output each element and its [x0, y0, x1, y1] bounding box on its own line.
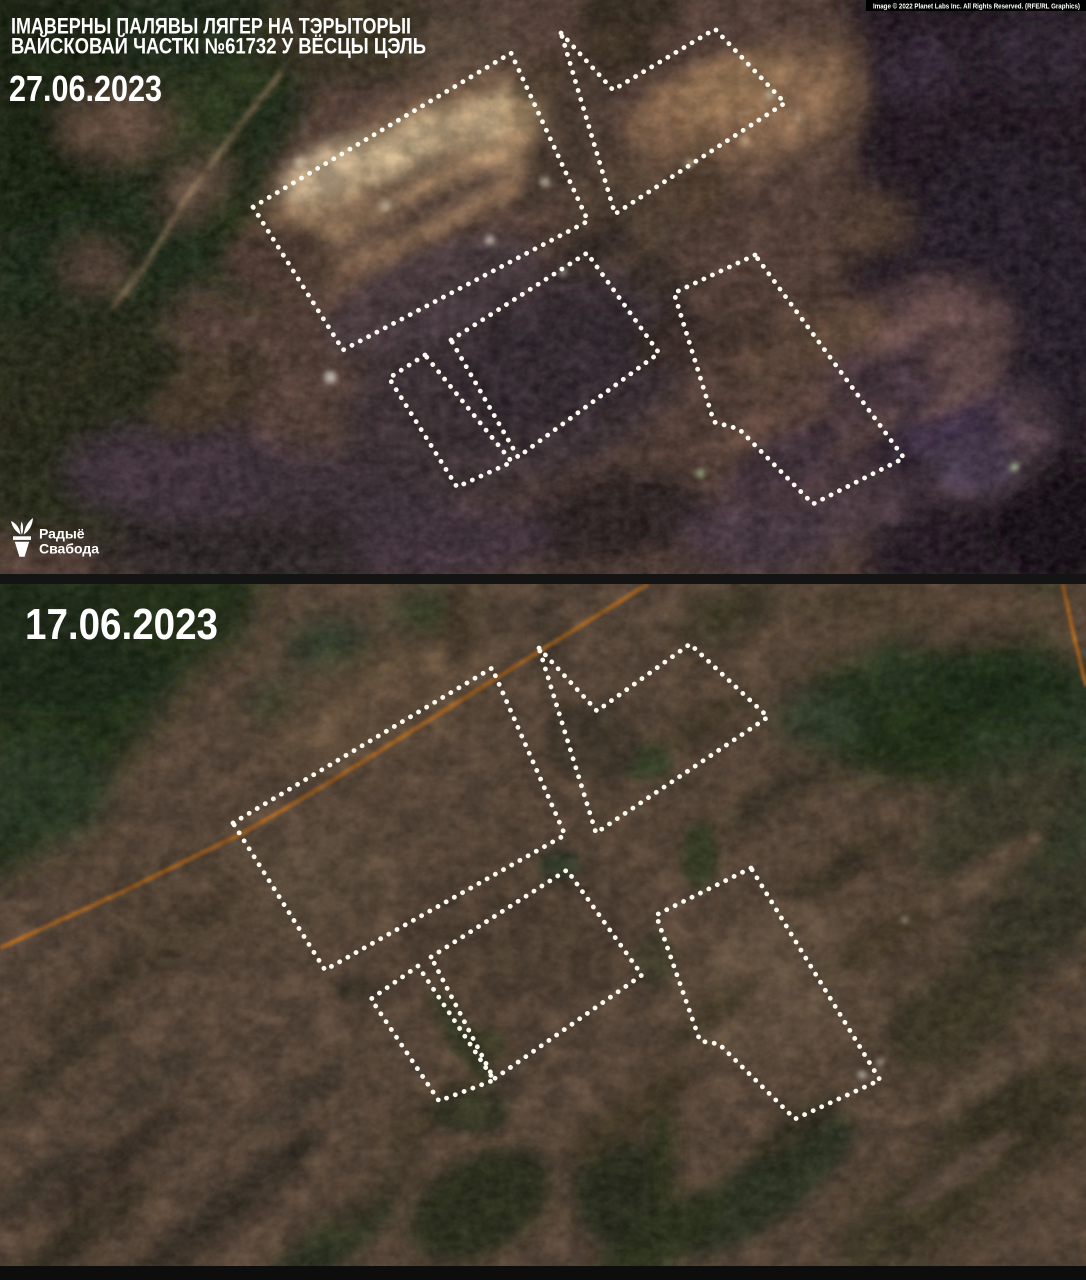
svg-text:Свабода: Свабода: [39, 541, 99, 557]
svg-text:Радыё: Радыё: [39, 526, 85, 542]
svg-text:ВАЙСКОВАЙ ЧАСТКІ №61732 У ВЁСЦ: ВАЙСКОВАЙ ЧАСТКІ №61732 У ВЁСЦЫ ЦЭЛЬ: [11, 34, 426, 59]
svg-text:27.06.2023: 27.06.2023: [9, 68, 162, 109]
svg-text:17.06.2023: 17.06.2023: [25, 600, 218, 649]
svg-text:Image © 2022 Planet Labs Inc.: Image © 2022 Planet Labs Inc. All Rights…: [873, 2, 1080, 11]
